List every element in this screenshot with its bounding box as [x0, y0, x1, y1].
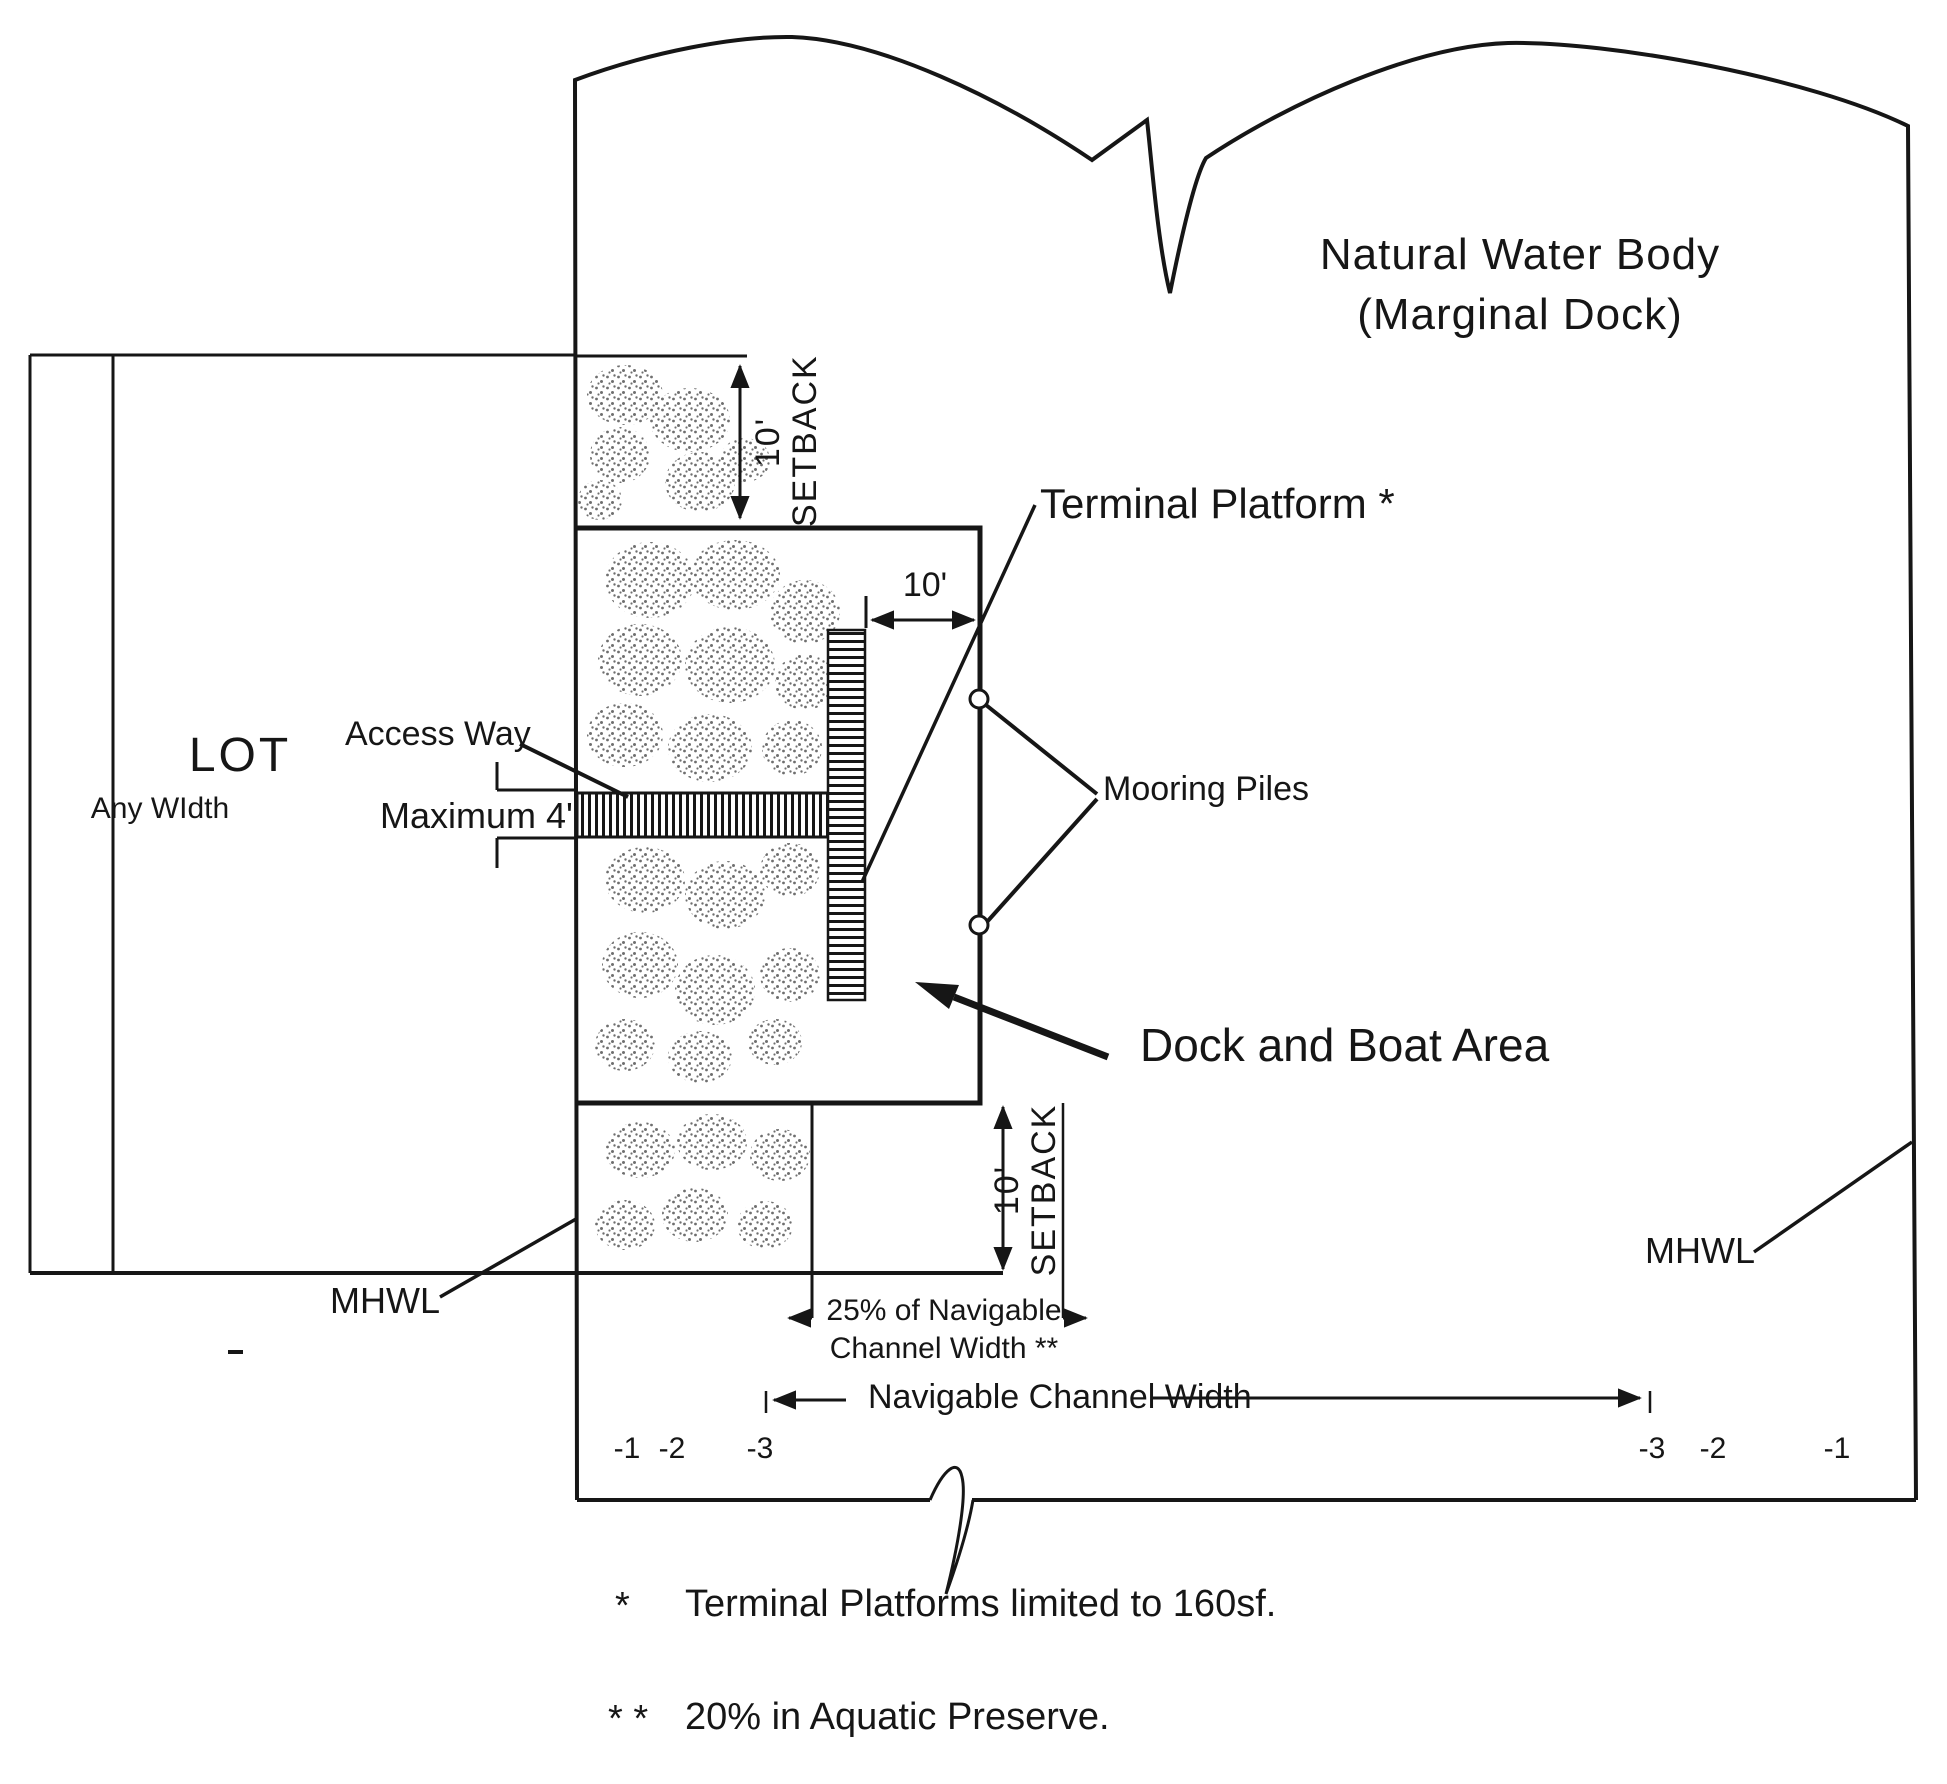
navigable-channel-label: Navigable Channel Width: [868, 1378, 1252, 1417]
mooring-pile-leader-bottom: [986, 799, 1097, 923]
terminal-platform-leader-line: [862, 505, 1035, 882]
mooring-piles-label: Mooring Piles: [1103, 770, 1309, 809]
mooring-pile-leader-top: [986, 705, 1097, 794]
title-natural-water-body: Natural Water Body: [1295, 230, 1745, 280]
depth-left-2: -2: [642, 1432, 702, 1466]
footnote-2-text: 20% in Aquatic Preserve.: [685, 1696, 1110, 1739]
access-way-strip: [577, 793, 828, 837]
platform-width-dimension-label: 10': [885, 566, 965, 605]
dock-boat-area-arrow-shaft: [954, 997, 1108, 1057]
shoreline-break-symbol: [930, 1467, 973, 1594]
mooring-pile-top: [970, 690, 988, 708]
depth-right-1: -1: [1807, 1432, 1867, 1466]
lot-any-width-label: Any WIdth: [60, 792, 260, 826]
mhwl-right-label: MHWL: [1645, 1230, 1755, 1272]
channel-limit-label: 25% of Navigable Channel Width **: [810, 1292, 1078, 1367]
bottom-setback-label: 10' SETBACK: [989, 1095, 1073, 1285]
depth-left-3: -3: [730, 1432, 790, 1466]
depth-right-3: -3: [1622, 1432, 1682, 1466]
bottom-setback-value: 10': [989, 1095, 1026, 1285]
terminal-platform-label: Terminal Platform *: [1040, 480, 1395, 528]
bottom-setback-word: SETBACK: [1026, 1095, 1063, 1285]
top-setback-word: SETBACK: [787, 357, 824, 527]
access-way-label: Access Way: [345, 715, 531, 754]
mooring-pile-bottom: [970, 916, 988, 934]
lot-label: LOT: [160, 728, 320, 783]
footnote-1-marker: *: [615, 1585, 630, 1628]
access-way-max-width-label: Maximum 4': [380, 795, 568, 837]
top-setback-label: 10' SETBACK: [750, 357, 834, 527]
top-setback-value: 10': [750, 357, 787, 527]
footnote-1-text: Terminal Platforms limited to 160sf.: [685, 1583, 1276, 1626]
dock-boat-area-arrow-head: [915, 982, 959, 1009]
depth-right-2: -2: [1683, 1432, 1743, 1466]
channel-limit-line1: 25% of Navigable: [810, 1292, 1078, 1330]
footnote-2-marker: * *: [608, 1698, 648, 1741]
channel-limit-line2: Channel Width **: [810, 1330, 1078, 1368]
mhwl-left-label: MHWL: [330, 1280, 440, 1322]
mhwl-right-leader-line: [1754, 1142, 1912, 1252]
title-marginal-dock: (Marginal Dock): [1295, 290, 1745, 340]
mhwl-left-leader-line: [440, 1219, 576, 1297]
marginal-dock-diagram: Natural Water Body (Marginal Dock) LOT A…: [0, 0, 1947, 1784]
dock-boat-area-label: Dock and Boat Area: [1140, 1018, 1549, 1072]
terminal-platform-strip: [828, 630, 865, 1000]
